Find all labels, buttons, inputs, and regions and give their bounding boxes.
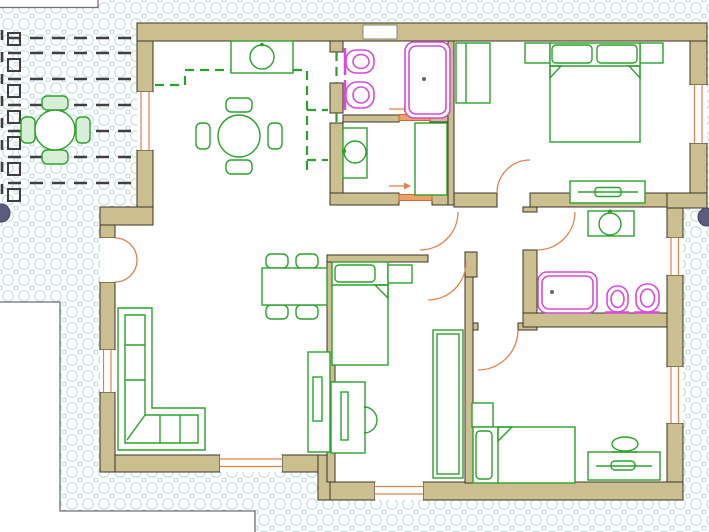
dining-table-icon <box>262 268 327 305</box>
wall-left-lower <box>100 282 115 350</box>
nightstand-icon <box>525 43 550 63</box>
single-bed-icon <box>332 262 388 365</box>
wall-laundry-hall <box>330 193 399 205</box>
wall-bottom-left <box>282 455 318 472</box>
chair-icon <box>226 98 252 112</box>
wall-niche <box>363 25 397 39</box>
chair-icon <box>196 123 210 149</box>
chair-icon <box>266 305 288 319</box>
patio-chair-icon <box>42 150 68 164</box>
wall-top <box>137 23 707 41</box>
washbasin-icon <box>588 210 634 237</box>
chair-icon <box>226 160 252 174</box>
patio-chair-icon <box>42 96 68 110</box>
wall-kitchen-bath <box>330 83 343 113</box>
dresser-icon <box>588 452 660 480</box>
chair-icon <box>296 305 318 319</box>
patio-chair-icon <box>76 117 90 143</box>
wall-bedroom2-bedroom3 <box>465 277 473 483</box>
wall-stub <box>465 252 477 277</box>
wall-bedroom3-top <box>473 323 478 330</box>
floor-plan-page <box>0 0 709 532</box>
wall-bottom-right <box>423 482 683 500</box>
window-icon <box>220 455 282 472</box>
bidet-icon <box>345 48 374 75</box>
wall-left-upper <box>137 150 153 207</box>
wall-bottom-right <box>330 482 375 500</box>
window-icon <box>667 238 683 275</box>
wall-right-lower <box>667 208 683 238</box>
wall-left-lower <box>100 392 115 472</box>
wall-right-step <box>667 193 707 208</box>
wall-left-upper <box>137 41 153 92</box>
laundry-cabinet-icon <box>415 123 447 195</box>
window-icon <box>137 92 153 150</box>
single-bed-icon <box>473 427 575 483</box>
nightstand-icon <box>388 265 412 283</box>
chair-icon <box>296 254 318 268</box>
nightstand-icon <box>640 43 663 63</box>
wall-left-step <box>100 207 153 225</box>
window-icon <box>100 350 115 392</box>
nightstand-icon <box>472 403 493 427</box>
patio-table-icon <box>35 110 75 150</box>
dresser-icon <box>570 181 645 203</box>
patio-chair-icon <box>21 117 35 143</box>
toilet-icon <box>634 284 660 313</box>
wall-bedroom1-hall <box>454 193 497 207</box>
window-icon <box>375 482 423 500</box>
wall-kitchen-bath <box>330 123 343 193</box>
chair-icon <box>266 254 288 268</box>
wall-right-upper <box>690 143 707 193</box>
wall-bath1-laundry <box>343 115 399 122</box>
vanity-mirror-icon <box>612 437 638 452</box>
wall-bottom-left <box>100 455 220 472</box>
double-bed-icon <box>550 43 640 142</box>
wardrobe-icon <box>456 43 490 103</box>
shelf-icon <box>308 352 330 452</box>
toilet-icon <box>345 80 374 110</box>
window-icon <box>667 367 683 423</box>
wall-bath2-bottom <box>523 313 667 327</box>
wardrobe-icon <box>433 330 463 478</box>
round-dining-table-icon <box>218 115 260 157</box>
washbasin-icon <box>342 128 367 178</box>
window-icon <box>690 85 707 143</box>
neighbor-building-top <box>0 0 98 8</box>
bathtub-icon <box>538 272 597 313</box>
wall-kitchen-bath <box>330 41 343 52</box>
wall-right-lower <box>667 275 683 367</box>
floor-plan-canvas <box>0 0 709 532</box>
wall-right-upper <box>690 41 707 85</box>
wall-bath2-left <box>523 207 537 212</box>
wall-left-lower <box>100 225 115 238</box>
bathtub-icon <box>405 42 450 118</box>
chair-icon <box>268 123 282 149</box>
wall-bedroom2-top <box>327 255 428 262</box>
bidet-icon <box>605 286 629 313</box>
